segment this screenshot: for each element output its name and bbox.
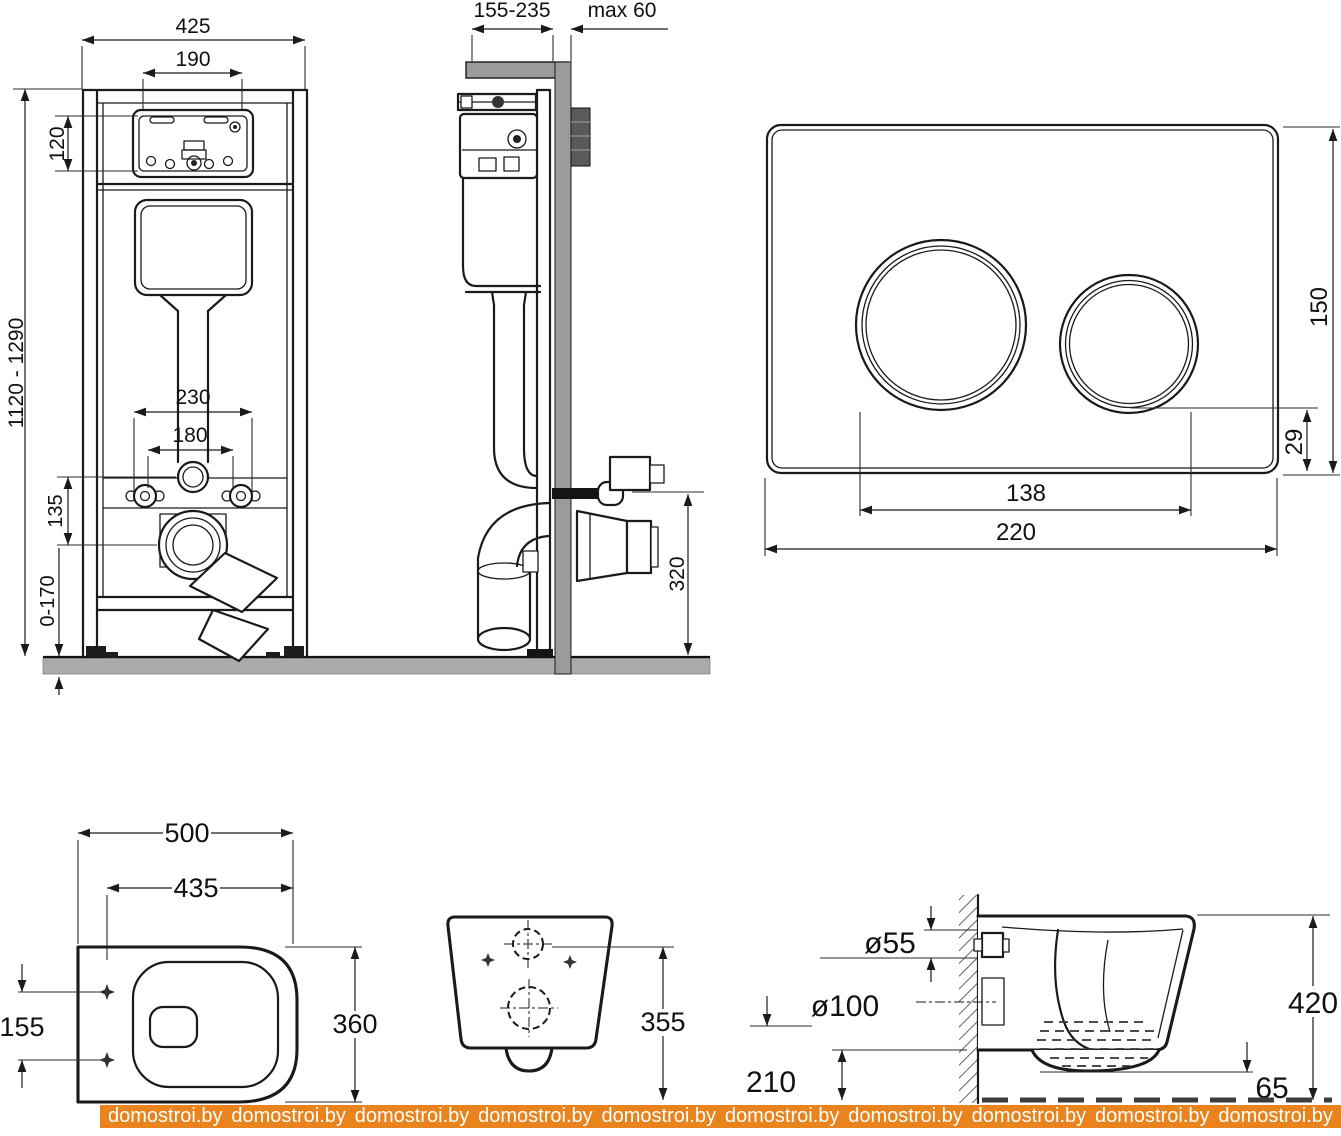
- dim-flush-outlet-offset: 135: [45, 494, 67, 527]
- dim-hole-spacing: 155: [0, 1012, 45, 1042]
- bowl-spigot-rear: [506, 1048, 552, 1071]
- dim-fixing-spacing-inner: 180: [172, 424, 207, 447]
- watermark-text: domostroi.by: [848, 1105, 963, 1128]
- dim-bowl-length: 500: [164, 818, 209, 848]
- dim-bowl-depth: 420: [1288, 987, 1338, 1020]
- watermark-text: domostroi.by: [108, 1105, 223, 1128]
- dim-frame-width: 425: [175, 15, 210, 38]
- floor: [43, 657, 710, 674]
- wall-stud: [555, 62, 571, 674]
- dim-button-to-edge: 29: [1281, 429, 1308, 456]
- dim-buttons-span: 138: [1006, 480, 1046, 507]
- wall-bracket: [571, 108, 590, 166]
- flush-plate-view: 150 29 138 220: [765, 125, 1340, 556]
- bowl-top-view: 500 435 155 360: [0, 818, 378, 1102]
- bowl-outline-side: [978, 916, 1194, 1050]
- dim-outlet-height: 320: [666, 556, 689, 591]
- dim-fixing-spacing-outer: 230: [175, 386, 210, 409]
- watermark-text: domostroi.by: [725, 1105, 840, 1128]
- watermark-bar: domostroi.by domostroi.by domostroi.by d…: [100, 1105, 1341, 1128]
- watermark-text: domostroi.by: [231, 1105, 346, 1128]
- wall-hatching: [959, 895, 978, 1103]
- dim-outlet-axis-height: 210: [746, 1066, 796, 1099]
- dim-plate-height: 150: [1306, 287, 1333, 327]
- dim-leg-adjustment: 0-170: [37, 575, 59, 626]
- bowl-rear-view: 355: [448, 917, 686, 1100]
- cistern-service-window: [133, 110, 253, 177]
- watermark-text: domostroi.by: [602, 1105, 717, 1128]
- technical-drawing-sheet: 425 190 120 1120 - 1290 230 180 135 0-17…: [0, 0, 1341, 1136]
- dim-depth-range: 155-235: [473, 0, 550, 22]
- dim-bowl-width: 360: [332, 1009, 377, 1039]
- bowl-trap-bulge: [1032, 1050, 1159, 1071]
- dim-service-window-width: 190: [175, 48, 210, 71]
- watermark-text: domostroi.by: [478, 1105, 593, 1128]
- waste-outlet: [159, 511, 277, 661]
- watermark-text: domostroi.by: [355, 1105, 470, 1128]
- dim-frame-height-range: 1120 - 1290: [5, 318, 28, 429]
- dim-service-window-height: 120: [46, 126, 69, 161]
- frame-front-view: 425 190 120 1120 - 1290 230 180 135 0-17…: [5, 15, 307, 695]
- drawing-canvas: 425 190 120 1120 - 1290 230 180 135 0-17…: [0, 0, 1341, 1136]
- bowl-outline-rear: [448, 917, 612, 1048]
- dim-outlet-diameter: ø100: [811, 990, 879, 1023]
- concealed-cistern: [135, 200, 252, 492]
- frame-side-view: 155-235 max 60 320: [458, 0, 704, 674]
- watermark-text: domostroi.by: [1218, 1105, 1333, 1128]
- watermark-text: domostroi.by: [1095, 1105, 1210, 1128]
- dim-bowl-inner-length: 435: [173, 873, 218, 903]
- dim-max-wall-thickness: max 60: [588, 0, 657, 22]
- top-rail: [466, 62, 568, 78]
- top-hanger: [458, 94, 536, 110]
- dim-plate-width: 220: [996, 519, 1036, 546]
- dim-rear-height: 355: [640, 1007, 685, 1037]
- bowl-side-view: ø55 ø100 210 420 65: [746, 895, 1338, 1105]
- cistern-side: [460, 114, 540, 488]
- dim-inlet-diameter: ø55: [864, 927, 916, 960]
- watermark-text: domostroi.by: [972, 1105, 1087, 1128]
